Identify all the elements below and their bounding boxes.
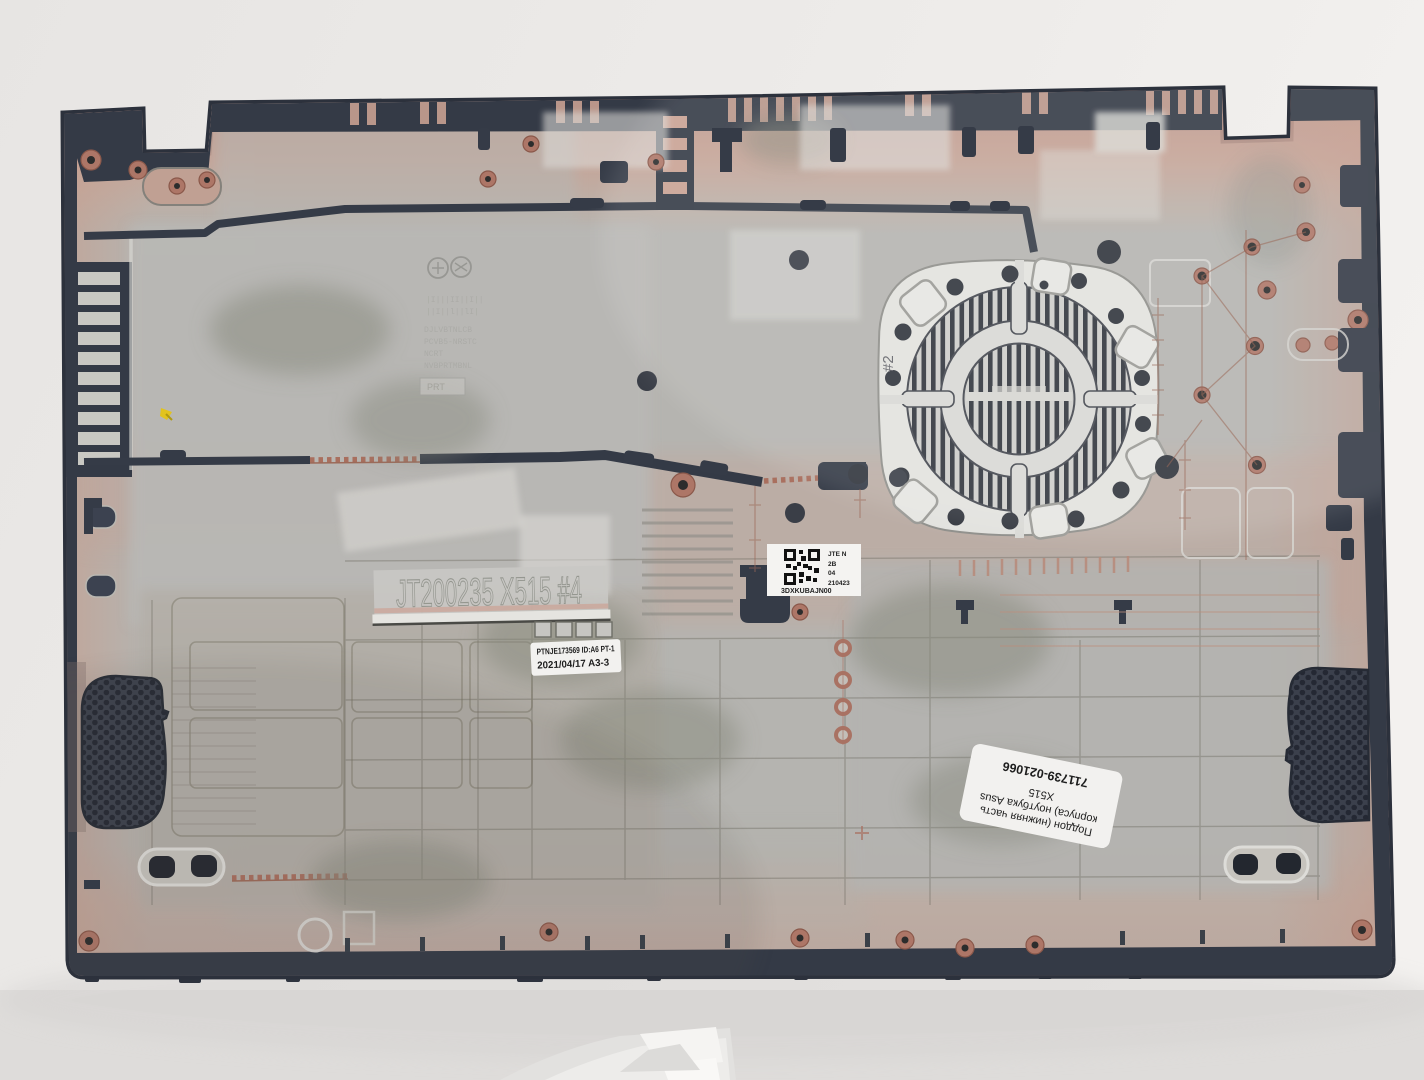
- svg-text:PCVB5-NRSTC: PCVB5-NRSTC: [424, 338, 477, 347]
- svg-text:DJLVBTNLCB: DJLVBTNLCB: [424, 326, 472, 335]
- svg-text:210423: 210423: [828, 580, 850, 587]
- svg-text:JTE N: JTE N: [828, 551, 847, 558]
- svg-text:3DXKUBAJN00: 3DXKUBAJN00: [781, 588, 832, 595]
- svg-text:04: 04: [828, 570, 836, 577]
- svg-text:JT200235 X515 #4: JT200235 X515 #4: [396, 569, 583, 616]
- svg-text:2B: 2B: [828, 561, 837, 568]
- svg-text:NVBPRTMBNL: NVBPRTMBNL: [424, 362, 472, 371]
- svg-text:|I|||II||I||: |I|||II||I||: [426, 296, 484, 305]
- svg-text:||I||l||lI|: ||I||l||lI|: [426, 308, 479, 317]
- svg-text:NCRT: NCRT: [424, 350, 443, 359]
- svg-text:PRT: PRT: [427, 382, 445, 392]
